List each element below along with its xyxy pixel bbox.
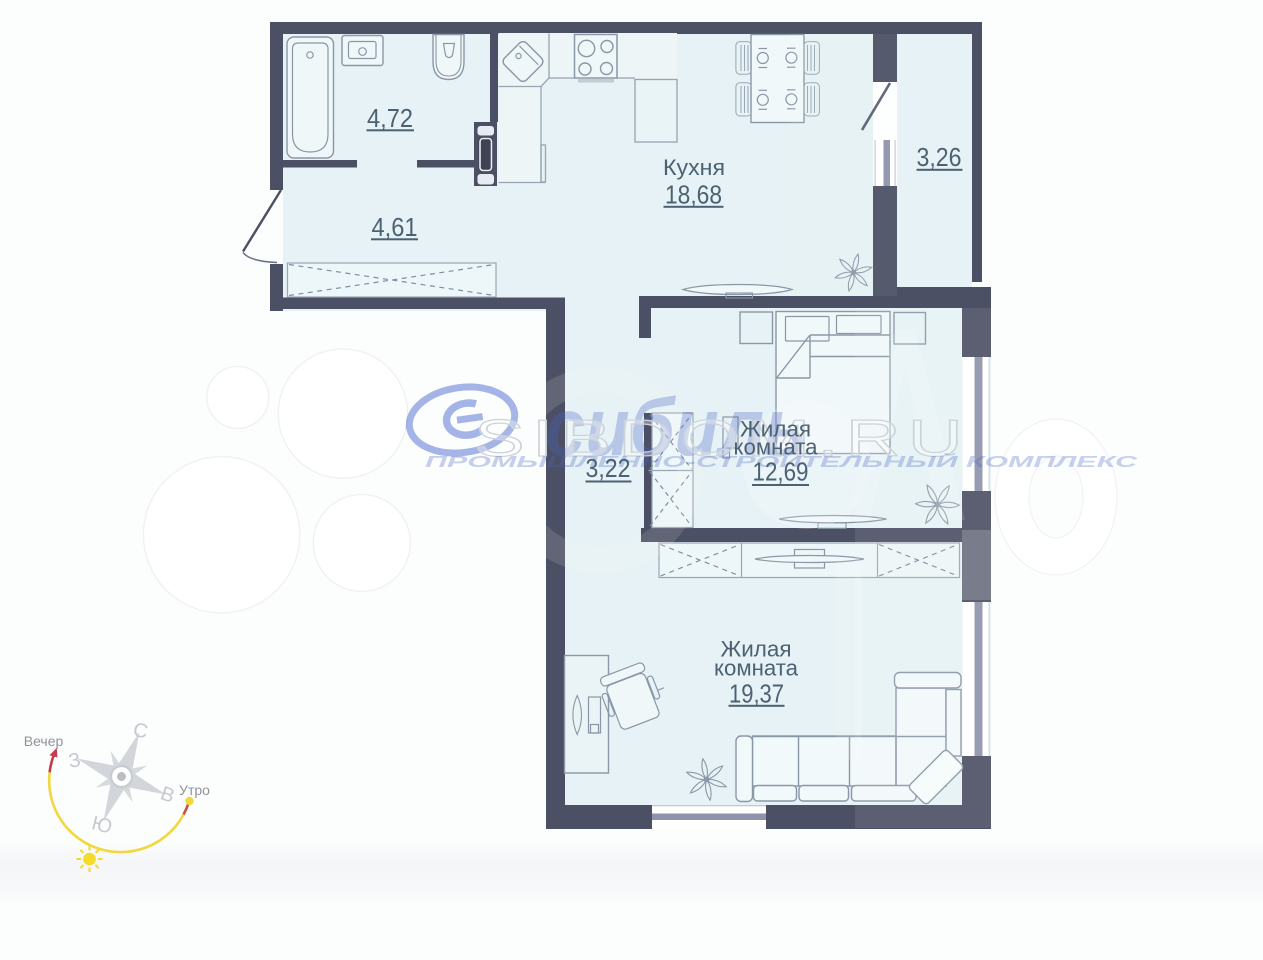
svg-text:Кухня: Кухня bbox=[663, 155, 725, 180]
svg-text:19,37: 19,37 bbox=[729, 679, 784, 709]
svg-text:12,69: 12,69 bbox=[753, 457, 809, 487]
svg-text:Вечер: Вечер bbox=[24, 733, 64, 749]
svg-text:3,22: 3,22 bbox=[586, 453, 631, 483]
svg-text:3,26: 3,26 bbox=[917, 142, 962, 172]
svg-text:4,72: 4,72 bbox=[367, 103, 413, 133]
svg-text:комната: комната bbox=[714, 656, 799, 681]
svg-text:4,61: 4,61 bbox=[372, 212, 418, 242]
svg-text:Утро: Утро bbox=[179, 782, 210, 798]
svg-text:18,68: 18,68 bbox=[665, 180, 722, 210]
